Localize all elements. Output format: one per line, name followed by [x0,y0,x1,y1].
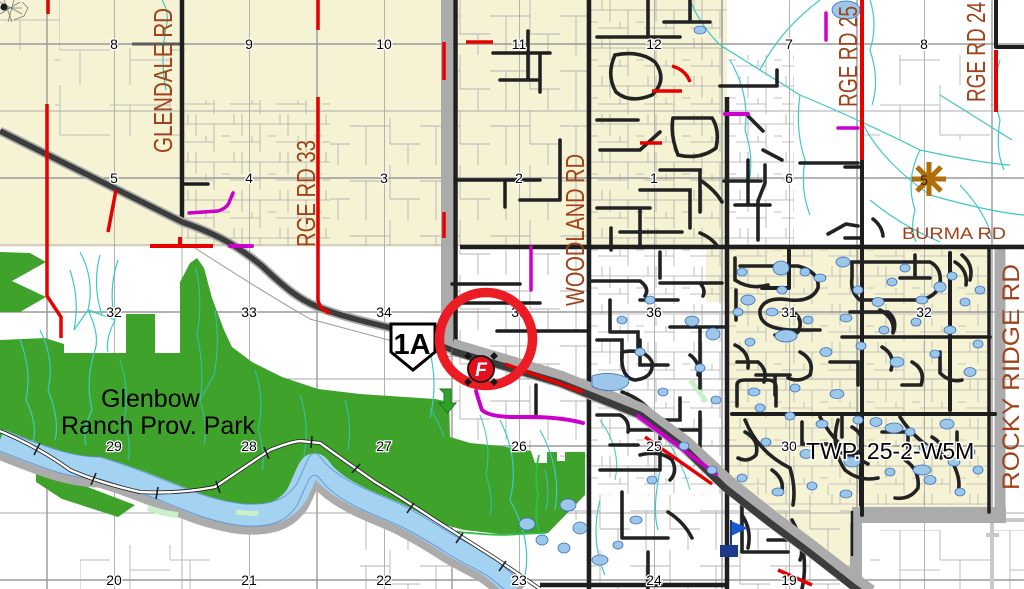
svg-text:TWP. 25-2-W5M: TWP. 25-2-W5M [806,438,974,464]
svg-text:2: 2 [515,170,523,186]
svg-text:BURMA RD: BURMA RD [902,224,1006,243]
svg-text:RGE RD 25: RGE RD 25 [833,6,863,107]
svg-text:12: 12 [646,36,662,52]
svg-text:1: 1 [650,170,658,186]
svg-text:4: 4 [245,170,253,186]
svg-text:WOODLAND RD: WOODLAND RD [560,154,590,306]
svg-text:26: 26 [511,438,527,454]
svg-text:5: 5 [920,172,928,188]
svg-text:Glenbow: Glenbow [101,385,201,413]
svg-text:F: F [475,360,488,381]
svg-text:8: 8 [920,36,928,52]
svg-text:19: 19 [781,572,797,588]
svg-text:31: 31 [781,304,797,320]
svg-text:21: 21 [241,572,257,588]
svg-text:20: 20 [106,572,122,588]
svg-text:24: 24 [646,572,662,588]
svg-text:6: 6 [785,170,793,186]
svg-text:1A: 1A [393,329,430,361]
svg-text:36: 36 [646,304,662,320]
svg-text:29: 29 [106,438,122,454]
svg-text:3: 3 [380,170,388,186]
svg-text:23: 23 [511,572,527,588]
svg-text:22: 22 [376,572,392,588]
svg-text:25: 25 [646,438,662,454]
svg-text:Ranch Prov. Park: Ranch Prov. Park [61,412,256,440]
svg-text:ROCKY RIDGE RD: ROCKY RIDGE RD [998,264,1024,490]
svg-text:11: 11 [512,36,527,52]
svg-text:32: 32 [916,304,932,320]
svg-text:9: 9 [245,36,253,52]
svg-text:5: 5 [110,170,118,186]
svg-text:7: 7 [785,36,793,52]
svg-text:GLENDALE RD: GLENDALE RD [148,8,178,153]
svg-text:RGE RD 24: RGE RD 24 [961,2,991,102]
svg-text:10: 10 [376,36,392,52]
svg-text:34: 34 [376,304,392,320]
svg-text:RGE RD 33: RGE RD 33 [291,140,321,247]
svg-text:33: 33 [241,304,257,320]
svg-text:28: 28 [241,438,257,454]
svg-text:30: 30 [781,438,797,454]
svg-text:8: 8 [110,36,118,52]
svg-text:27: 27 [376,438,392,454]
svg-text:32: 32 [106,304,122,320]
